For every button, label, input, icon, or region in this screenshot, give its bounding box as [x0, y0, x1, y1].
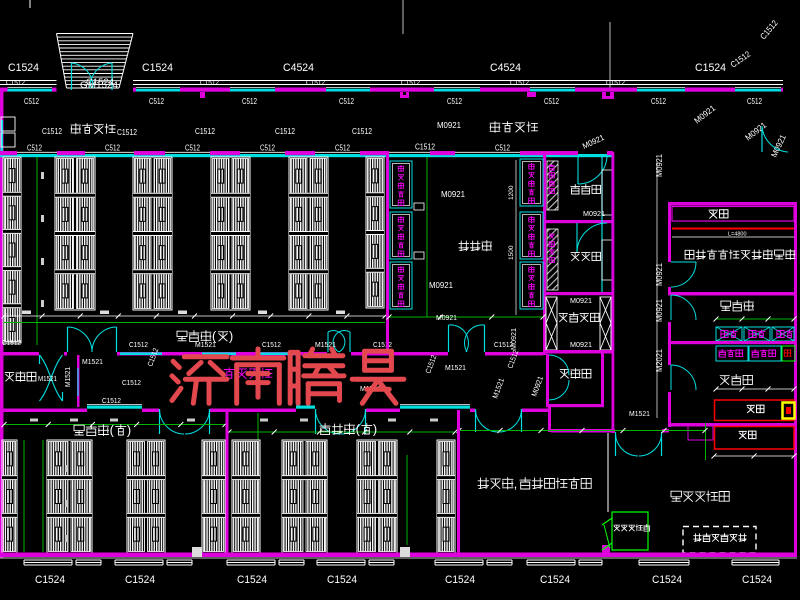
svg-text:1200: 1200 [508, 185, 515, 200]
svg-text:C512: C512 [105, 144, 120, 153]
svg-text:C1512: C1512 [200, 78, 219, 87]
svg-text:M1521: M1521 [38, 376, 57, 383]
svg-text:C512: C512 [447, 97, 462, 106]
svg-text:C512: C512 [495, 144, 510, 153]
svg-text:M2021: M2021 [655, 348, 664, 372]
svg-text:C4524: C4524 [490, 62, 521, 74]
svg-text:C1512: C1512 [6, 78, 25, 87]
svg-text:C1512: C1512 [102, 396, 121, 405]
svg-text:C1512: C1512 [2, 338, 21, 347]
svg-text:C1512: C1512 [117, 127, 137, 137]
svg-text:C1524: C1524 [652, 574, 682, 586]
svg-text:C1524: C1524 [445, 574, 475, 586]
svg-text:C1512: C1512 [352, 126, 372, 136]
svg-text:L=4800: L=4800 [728, 232, 747, 238]
svg-text:M0921: M0921 [437, 121, 462, 130]
svg-text:C1524: C1524 [695, 62, 726, 74]
svg-text:): ) [373, 422, 377, 437]
svg-text:C1512: C1512 [195, 126, 215, 136]
svg-text:M0921: M0921 [655, 153, 664, 177]
svg-text:M1521: M1521 [195, 340, 216, 349]
svg-text:M0921: M0921 [441, 190, 466, 199]
svg-text:C512: C512 [24, 97, 39, 106]
svg-text:C1524: C1524 [8, 62, 39, 74]
svg-text:C1512: C1512 [415, 143, 435, 152]
svg-text:M0921: M0921 [570, 296, 592, 305]
svg-text:): ) [229, 330, 233, 344]
svg-text:C1524: C1524 [142, 62, 173, 74]
svg-text:C1524: C1524 [86, 77, 114, 87]
svg-text:C512: C512 [747, 97, 762, 106]
svg-text:C512: C512 [260, 144, 275, 153]
svg-text:C1512: C1512 [373, 340, 392, 349]
svg-text:C512: C512 [544, 97, 559, 106]
svg-text:(: ( [110, 423, 115, 438]
svg-text:C1524: C1524 [742, 574, 772, 586]
svg-text:M0921: M0921 [655, 298, 664, 322]
svg-text:C1512: C1512 [275, 126, 295, 136]
svg-text:1500: 1500 [508, 245, 515, 260]
svg-text:C512: C512 [335, 144, 350, 153]
svg-text:C512: C512 [651, 97, 666, 106]
svg-text:C1524: C1524 [237, 574, 267, 586]
svg-text:C1512: C1512 [129, 340, 148, 349]
svg-text:C1524: C1524 [125, 574, 155, 586]
svg-text:M1521: M1521 [82, 357, 103, 366]
svg-text:C512: C512 [27, 144, 42, 153]
svg-text:M1521: M1521 [65, 367, 72, 387]
svg-text:): ) [127, 423, 131, 438]
svg-text:C1512: C1512 [510, 78, 529, 87]
svg-text:M0921: M0921 [436, 315, 457, 322]
svg-text:,: , [514, 476, 518, 491]
svg-text:C1524: C1524 [35, 574, 65, 586]
svg-text:C512: C512 [242, 97, 257, 106]
svg-text:M1521: M1521 [629, 409, 650, 418]
svg-text:C1512: C1512 [494, 340, 513, 349]
svg-text:M0921: M0921 [429, 281, 454, 290]
svg-text:C1512: C1512 [262, 340, 281, 349]
svg-text:C512: C512 [339, 97, 354, 106]
svg-text:C1512: C1512 [306, 78, 325, 87]
svg-text:C1512: C1512 [606, 78, 625, 87]
svg-text:C4524: C4524 [283, 62, 314, 74]
svg-text:(: ( [356, 422, 361, 437]
svg-text:M0921: M0921 [655, 262, 664, 286]
svg-text:M1521: M1521 [445, 363, 466, 372]
svg-text:C1524: C1524 [540, 574, 570, 586]
svg-text:C512: C512 [185, 144, 200, 153]
svg-text:C1524: C1524 [327, 574, 357, 586]
svg-text:C1512: C1512 [122, 378, 141, 387]
svg-text:C1512: C1512 [401, 78, 420, 87]
svg-text:C1512: C1512 [42, 126, 62, 136]
svg-text:C512: C512 [149, 97, 164, 106]
svg-text:M0921: M0921 [570, 340, 592, 349]
